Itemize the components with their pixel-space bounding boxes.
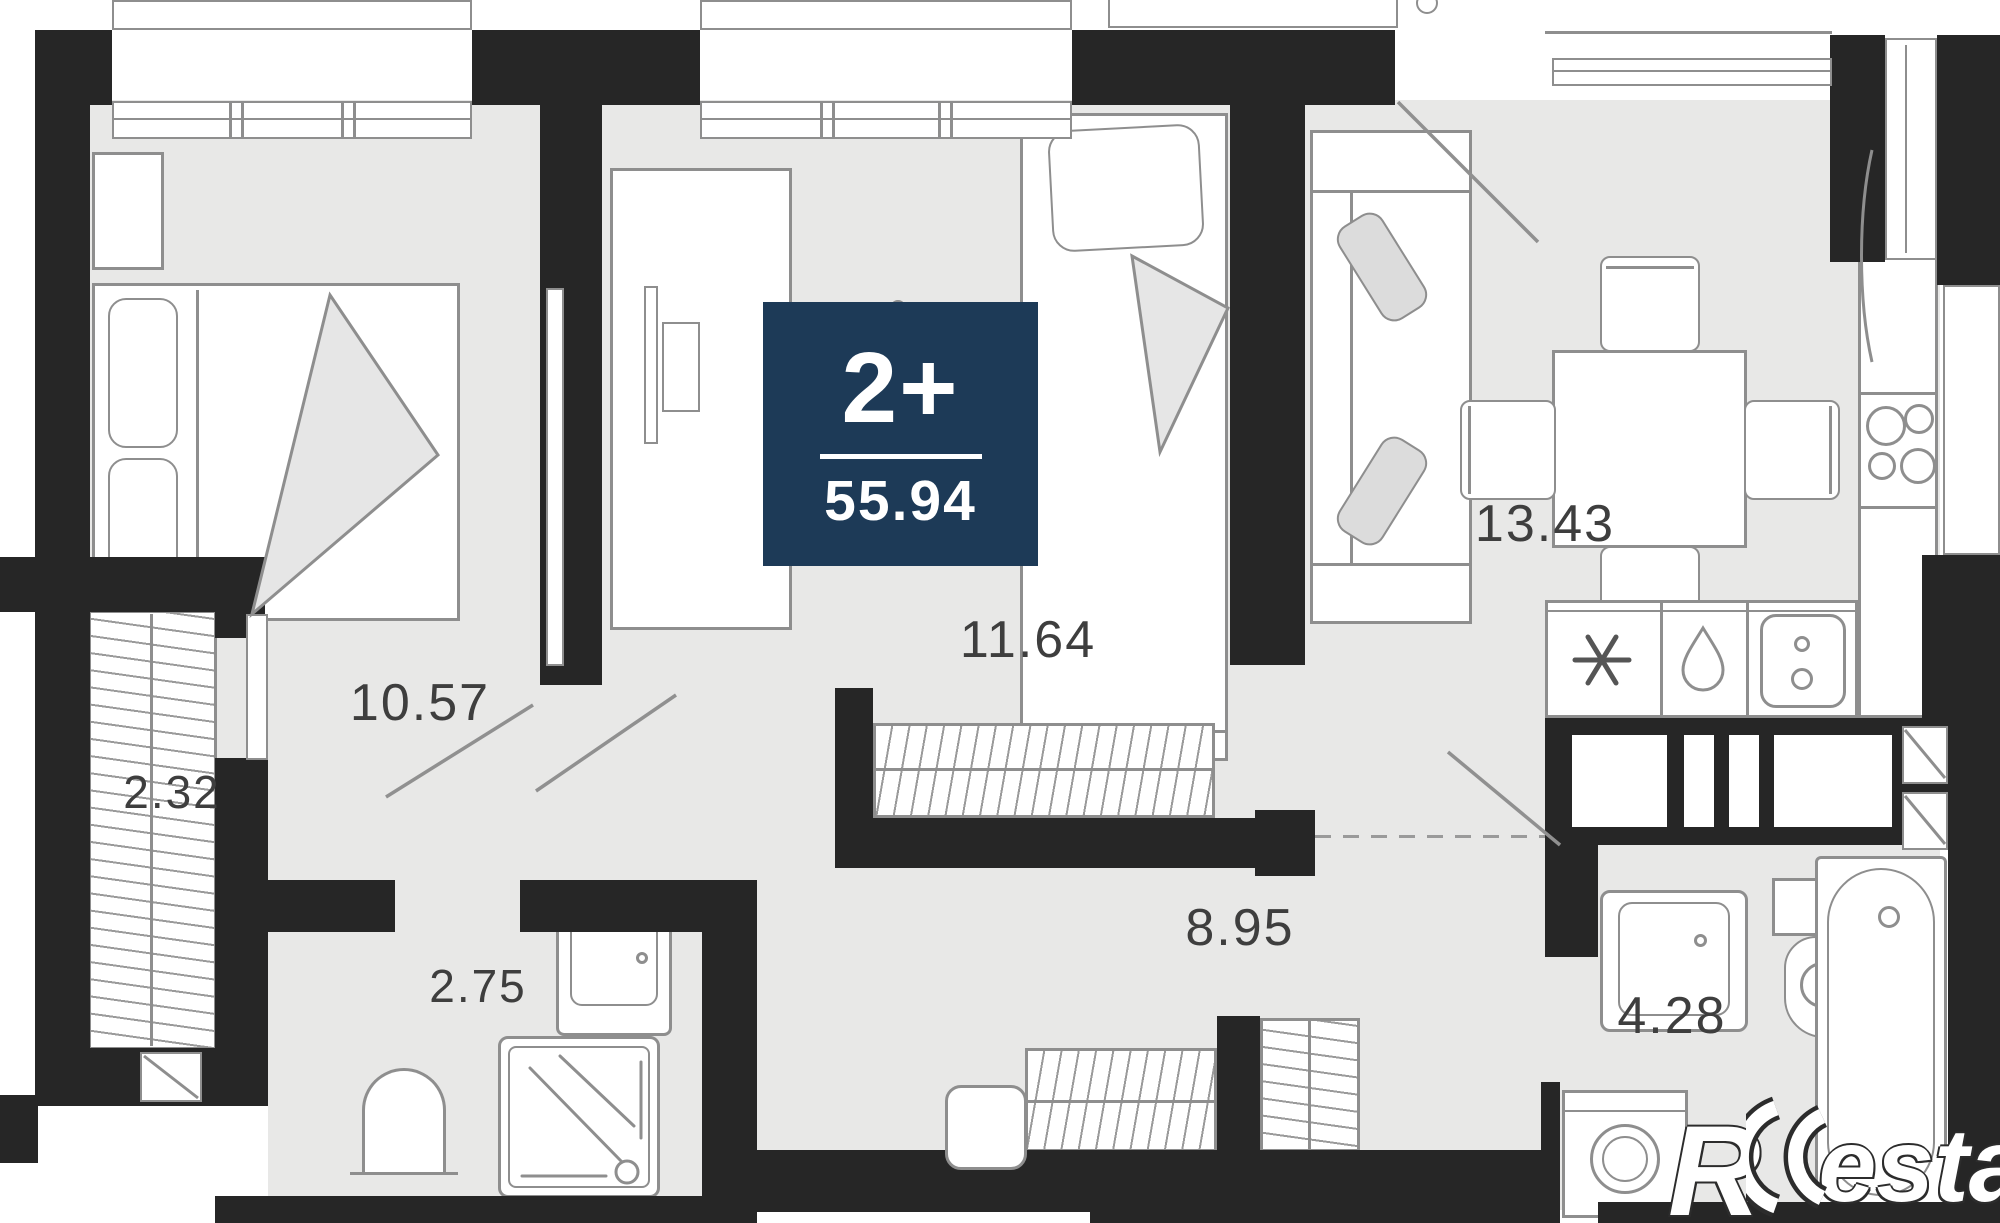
apartment-badge: 2+ 55.94 <box>763 302 1038 566</box>
closet-rail <box>150 614 153 1046</box>
faucet-dot <box>1791 668 1813 690</box>
chair-back-line <box>1606 266 1694 269</box>
window-tick <box>229 103 232 137</box>
door-opening <box>1774 735 1892 827</box>
window-tick <box>353 103 356 137</box>
door-opening <box>1572 735 1667 827</box>
pillow-icon <box>108 298 178 448</box>
door-leaf-icon <box>1902 792 1948 850</box>
wardrobe-rail <box>875 768 1213 771</box>
dining-chair-icon <box>1460 400 1556 500</box>
room-label-bathroom-small: 2.75 <box>429 959 527 1013</box>
wall <box>1541 1082 1560 1223</box>
monitor-stand <box>662 322 700 412</box>
sofa-icon <box>1310 130 1472 624</box>
wall <box>1830 35 1885 262</box>
sink-icon <box>1760 614 1846 708</box>
pillow-icon <box>1047 123 1205 253</box>
window-side <box>1943 285 2000 555</box>
window-tick <box>241 103 244 137</box>
door-leaf-icon <box>1902 726 1948 784</box>
neighbor-unit-outline <box>1108 0 1398 28</box>
window-tick <box>938 103 941 137</box>
niche-line <box>1905 45 1907 253</box>
wall <box>1255 810 1315 876</box>
drain-dot <box>1878 906 1900 928</box>
stove-burner-icon <box>1866 406 1906 446</box>
closet-door-slab <box>246 614 268 760</box>
window-sill <box>112 101 472 139</box>
total-area-label: 55.94 <box>824 473 977 530</box>
window-tick <box>832 103 835 137</box>
window-tick <box>820 103 823 137</box>
wall <box>835 688 873 820</box>
room-type-label: 2+ <box>841 338 959 438</box>
sofa-armrest-line <box>1312 190 1470 193</box>
cabinet-divider <box>1746 602 1749 716</box>
dining-chair-icon <box>1744 400 1840 500</box>
wall <box>1072 30 1395 105</box>
toilet-base-line <box>350 1172 458 1175</box>
wall <box>1937 35 2000 285</box>
washer-drum-inner <box>1602 1136 1648 1182</box>
wall <box>835 818 1305 868</box>
stove-burner-icon <box>1904 404 1934 434</box>
dining-chair-icon <box>1600 256 1700 352</box>
wall <box>35 30 112 105</box>
wall <box>215 1196 757 1223</box>
stove-burner-icon <box>1900 448 1936 484</box>
room-label-closet: 2.32 <box>123 765 221 819</box>
sill-line <box>114 118 470 120</box>
floor-plan: 10.57 2.32 2.75 11.64 8.95 13.43 4.28 2+… <box>0 0 2000 1223</box>
door-opening <box>1684 735 1714 827</box>
window-tick <box>950 103 953 137</box>
pouf-icon <box>945 1085 1027 1170</box>
chair-back-line <box>1829 406 1832 494</box>
badge-divider <box>820 454 982 459</box>
window-tick <box>341 103 344 137</box>
monitor-icon <box>644 286 658 444</box>
room-label-kitchen-living: 13.43 <box>1475 494 1615 554</box>
toilet-icon <box>362 1068 446 1174</box>
wall <box>1230 105 1305 665</box>
boundary-line <box>1545 31 1832 34</box>
faucet-dot <box>1794 636 1810 652</box>
wall <box>757 1150 1090 1212</box>
counter-divider <box>1860 506 1936 509</box>
room-label-bathroom-main: 4.28 <box>1617 986 1726 1046</box>
wall <box>215 758 268 1052</box>
watermark-logo: Restate <box>1668 1108 2000 1223</box>
room-label-bedroom-second: 11.64 <box>960 610 1096 670</box>
wall <box>1217 1016 1260 1152</box>
door-leaf-icon <box>140 1052 202 1102</box>
wall <box>520 880 702 932</box>
cabinet-divider <box>1660 602 1663 716</box>
zone-dashed-line <box>1315 835 1545 838</box>
wall <box>1545 845 1598 957</box>
wall <box>0 557 265 612</box>
wall <box>702 880 757 1223</box>
nightstand <box>92 152 164 270</box>
window-frame <box>112 0 472 30</box>
faucet-dot <box>636 952 648 964</box>
wall <box>1090 1150 1545 1223</box>
radiator-line <box>1554 70 1830 72</box>
wall <box>268 880 395 932</box>
faucet-dot <box>1694 934 1707 947</box>
shower-tray-inner <box>508 1046 650 1188</box>
sofa-armrest-line <box>1312 563 1470 566</box>
wardrobe-rail <box>1308 1020 1311 1150</box>
chair-back-line <box>1468 406 1471 494</box>
wardrobe-rail <box>1027 1100 1215 1103</box>
door-opening <box>1729 735 1759 827</box>
window-sill <box>700 101 1072 139</box>
window-frame <box>700 0 1072 30</box>
wall <box>472 30 700 105</box>
watermark-swoosh-icon <box>1746 1094 1916 1219</box>
sill-line <box>702 118 1070 120</box>
radiator-icon <box>1552 58 1832 86</box>
wall <box>0 1095 38 1163</box>
room-label-hallway: 8.95 <box>1185 898 1294 958</box>
counter-edge-line <box>1547 610 1856 612</box>
counter-divider <box>1860 392 1936 395</box>
neighbor-glyph <box>1416 0 1438 14</box>
room-label-bedroom-main: 10.57 <box>350 673 490 733</box>
balcony-door-niche <box>1885 38 1937 260</box>
stove-burner-icon <box>1868 452 1896 480</box>
mirror-icon <box>546 288 564 666</box>
